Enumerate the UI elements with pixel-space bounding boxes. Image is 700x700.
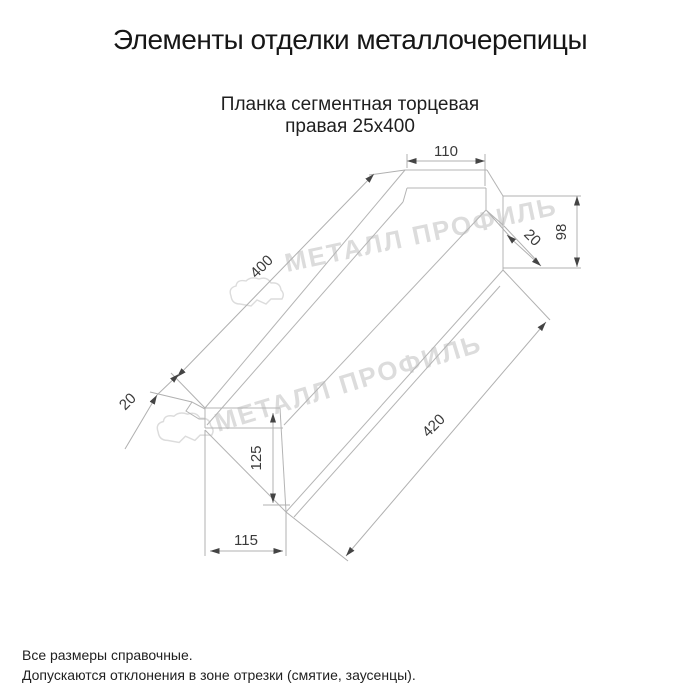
footer-notes: Все размеры справочные. Допускаются откл…	[22, 645, 416, 685]
dim-left-hem: 20	[116, 390, 140, 414]
dim-top-flange-width: 110	[434, 143, 458, 160]
technical-drawing: МЕТАЛЛ ПРОФИЛЬ МЕТАЛЛ ПРОФИЛЬ	[0, 0, 700, 700]
dim-left-end-width: 115	[234, 532, 258, 549]
watermark-text: МЕТАЛЛ ПРОФИЛЬ	[282, 191, 560, 278]
dim-right-end-height: 98	[553, 224, 570, 241]
footer-note-1: Все размеры справочные.	[22, 645, 416, 665]
dim-right-hem: 20	[520, 226, 544, 250]
dim-bottom-edge-length: 420	[419, 411, 449, 441]
watermark-logo-icon	[230, 278, 283, 306]
footer-note-2: Допускаются отклонения в зоне отрезки (с…	[22, 665, 416, 685]
dim-top-edge-length: 400	[247, 252, 277, 282]
dim-left-end-height: 125	[248, 445, 265, 470]
drawing-page: Элементы отделки металлочерепицы Планка …	[0, 0, 700, 700]
